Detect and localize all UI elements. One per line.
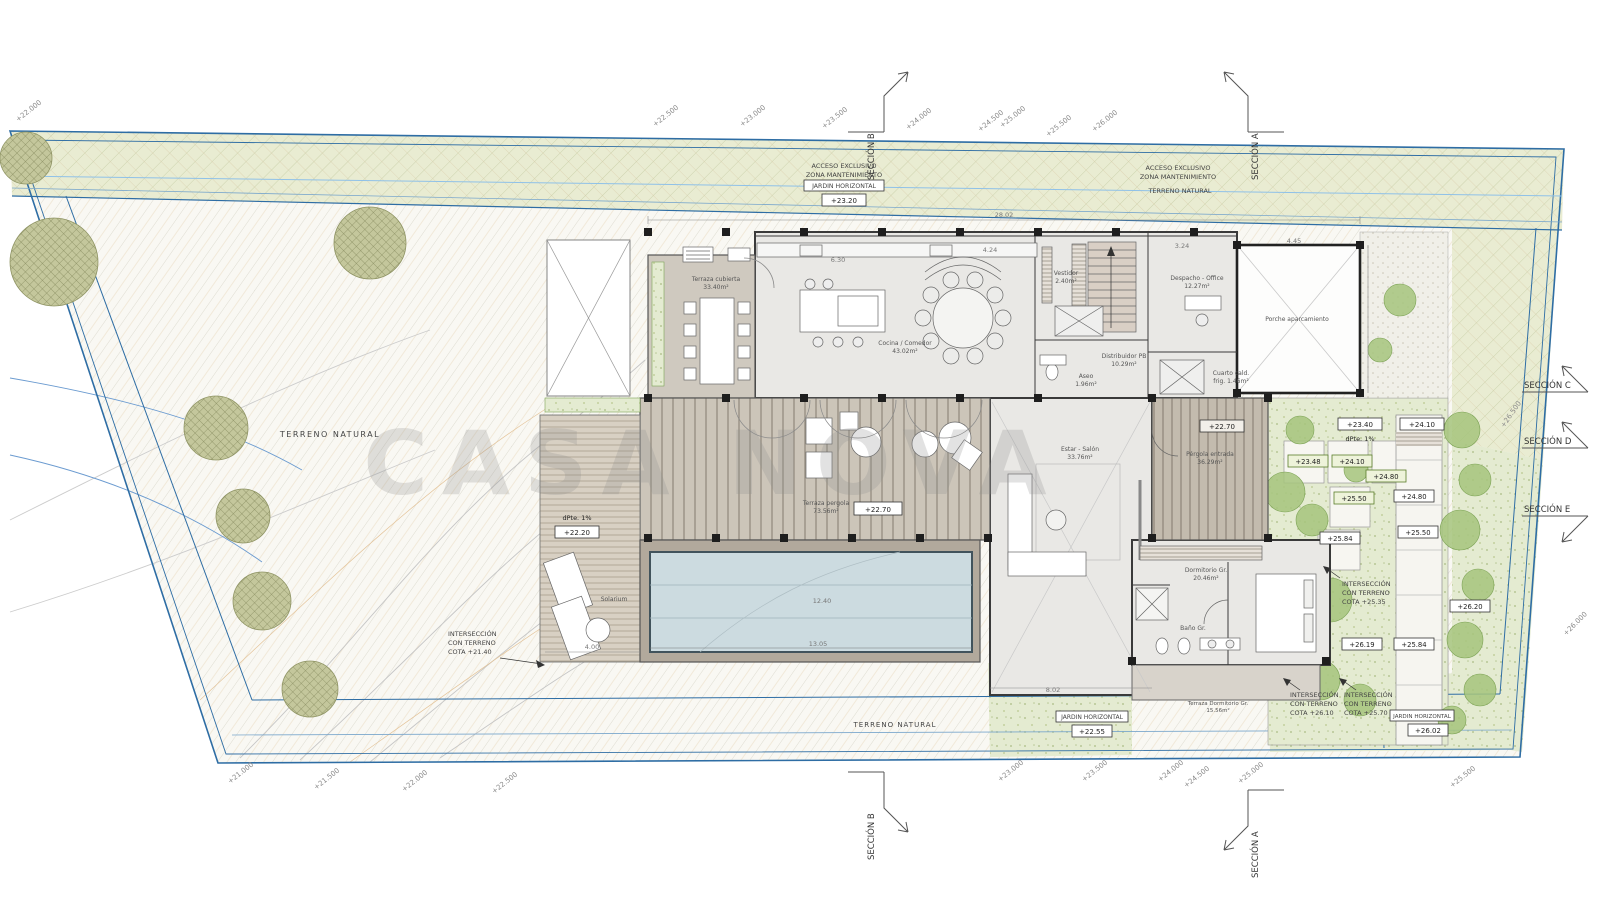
watermark: CASA NOVA <box>363 412 1060 515</box>
svg-text:+23.000: +23.000 <box>738 104 767 129</box>
entry-pergola <box>1152 398 1268 540</box>
svg-text:+22.000: +22.000 <box>14 99 43 124</box>
svg-text:+22.55: +22.55 <box>1079 728 1105 736</box>
room-aseo: Aseo <box>1079 373 1094 380</box>
svg-text:SECCIÓN A: SECCIÓN A <box>1249 133 1261 180</box>
svg-text:+22.000: +22.000 <box>400 769 429 794</box>
svg-text:+24.000: +24.000 <box>904 107 933 132</box>
svg-text:33.40m²: 33.40m² <box>703 284 729 291</box>
acceso-right: ACCESO EXCLUSIVO <box>1146 164 1211 172</box>
svg-text:JARDIN HORIZONTAL: JARDIN HORIZONTAL <box>1392 714 1452 720</box>
room-cocina: Cocina / Comedor <box>878 340 932 347</box>
svg-text:CON TERRENO: CON TERRENO <box>1290 700 1338 708</box>
svg-text:CON TERRENO: CON TERRENO <box>448 639 496 647</box>
dim-pool-top: 12.40 <box>813 597 832 605</box>
svg-text:frig. 1.46m²: frig. 1.46m² <box>1213 378 1249 385</box>
bidet <box>1178 638 1190 654</box>
dim-kitchen: 6.30 <box>831 256 845 264</box>
section-a-bottom: SECCIÓN A <box>1224 790 1284 878</box>
svg-text:+25.000: +25.000 <box>1236 761 1265 786</box>
svg-text:CON TERRENO: CON TERRENO <box>1344 700 1392 708</box>
svg-text:INTERSECCIÓN: INTERSECCIÓN <box>1344 690 1393 699</box>
svg-text:+21.500: +21.500 <box>312 767 341 792</box>
tree <box>10 218 98 306</box>
room-pergola-entrada: Pérgola entrada <box>1186 451 1234 458</box>
svg-text:SECCIÓN E: SECCIÓN E <box>1524 503 1570 515</box>
svg-text:+24.80: +24.80 <box>1401 493 1426 501</box>
tree <box>216 489 270 543</box>
svg-text:JARDIN HORIZONTAL: JARDIN HORIZONTAL <box>1060 714 1124 721</box>
svg-text:+22.500: +22.500 <box>490 771 519 796</box>
svg-text:+26.000: +26.000 <box>1562 610 1589 637</box>
bbq <box>683 247 713 262</box>
room-vestidor: Vestidor <box>1054 270 1079 277</box>
svg-text:SECCIÓN B: SECCIÓN B <box>865 813 877 860</box>
svg-text:SECCIÓN C: SECCIÓN C <box>1524 379 1571 391</box>
svg-text:12.27m²: 12.27m² <box>1184 283 1210 290</box>
svg-text:ZONA MANTENIMIENTO: ZONA MANTENIMIENTO <box>1140 173 1216 181</box>
svg-text:20.46m²: 20.46m² <box>1193 575 1219 582</box>
svg-text:2.40m²: 2.40m² <box>1055 278 1077 285</box>
cota-entry-pergola: +22.70 <box>1200 420 1244 432</box>
toilet <box>1156 638 1168 654</box>
svg-text:+26.000: +26.000 <box>1090 109 1119 134</box>
terreno-natural-bottom: TERRENO NATURAL <box>853 721 937 729</box>
dim-total-top: 28.02 <box>995 211 1014 219</box>
site-plan-drawing: 28.02 6.30 4.24 3.24 4.45 12.40 13.05 4.… <box>0 0 1599 900</box>
svg-text:SECCIÓN A: SECCIÓN A <box>1249 831 1261 878</box>
tree <box>233 572 291 630</box>
svg-text:+26.02: +26.02 <box>1415 727 1441 735</box>
svg-text:+21.000: +21.000 <box>226 761 255 786</box>
dim-pool-bottom: 13.05 <box>809 640 828 648</box>
svg-text:1.96m²: 1.96m² <box>1075 381 1097 388</box>
svg-text:CON TERRENO: CON TERRENO <box>1342 589 1390 597</box>
svg-text:15.56m²: 15.56m² <box>1206 707 1229 714</box>
dim-carport: 4.45 <box>1287 237 1301 245</box>
room-solarium: Solarium <box>601 596 628 603</box>
svg-text:+23.20: +23.20 <box>831 197 857 205</box>
svg-text:+24.80: +24.80 <box>1373 473 1398 481</box>
room-cuarto: Cuarto cald. <box>1213 370 1250 377</box>
dim-office: 3.24 <box>1175 242 1189 250</box>
svg-text:+24.500: +24.500 <box>1182 765 1211 790</box>
tree <box>334 207 406 279</box>
svg-text:+25.000: +25.000 <box>998 105 1027 130</box>
room-estar: Estar - Salón <box>1061 446 1099 453</box>
svg-text:SECCIÓN B: SECCIÓN B <box>865 133 877 180</box>
svg-text:INTERSECCIÓN: INTERSECCIÓN <box>1342 579 1391 588</box>
svg-text:+26.19: +26.19 <box>1349 641 1374 649</box>
svg-text:+24.10: +24.10 <box>1409 421 1435 429</box>
room-porche: Porche aparcamiento <box>1265 316 1329 323</box>
room-despacho: Despacho - Office <box>1170 275 1223 282</box>
svg-text:43.02m²: 43.02m² <box>892 348 918 355</box>
svg-text:dPte. 1%: dPte. 1% <box>562 514 591 522</box>
svg-text:+22.20: +22.20 <box>564 529 590 537</box>
room-bano: Baño Gr. <box>1180 625 1206 632</box>
svg-text:+26.20: +26.20 <box>1457 603 1482 611</box>
room-terraza-dormitorio: Terraza Dormitorio Gr. <box>1187 701 1249 707</box>
svg-text:COTA +25.70: COTA +25.70 <box>1344 709 1388 717</box>
room-distribuidor: Distribuidor PB <box>1102 353 1147 360</box>
svg-text:INTERSECCIÓN: INTERSECCIÓN <box>1290 690 1339 699</box>
svg-text:SECCIÓN D: SECCIÓN D <box>1524 435 1572 447</box>
svg-text:+24.10: +24.10 <box>1339 458 1364 466</box>
room-terraza-cubierta: Terraza cubierta <box>691 276 741 283</box>
terreno-natural-top: TERRENO NATURAL <box>1147 187 1211 195</box>
svg-text:+24.000: +24.000 <box>1156 759 1185 784</box>
svg-text:+25.500: +25.500 <box>1448 765 1477 790</box>
pool <box>650 552 972 652</box>
tree <box>0 132 52 184</box>
svg-text:COTA +21.40: COTA +21.40 <box>448 648 492 656</box>
svg-text:10.29m²: 10.29m² <box>1111 361 1137 368</box>
svg-text:+23.500: +23.500 <box>820 106 849 131</box>
svg-text:+23.48: +23.48 <box>1295 458 1320 466</box>
svg-text:33.76m²: 33.76m² <box>1067 454 1093 461</box>
dim-deck: 4.00 <box>585 643 599 651</box>
svg-text:+25.84: +25.84 <box>1401 641 1426 649</box>
svg-text:36.29m²: 36.29m² <box>1197 459 1223 466</box>
svg-text:+23.000: +23.000 <box>996 759 1025 784</box>
dim-dining: 4.24 <box>983 246 997 254</box>
svg-text:+22.70: +22.70 <box>1209 423 1235 431</box>
svg-text:+23.40: +23.40 <box>1347 421 1373 429</box>
svg-text:JARDIN HORIZONTAL: JARDIN HORIZONTAL <box>811 183 876 190</box>
svg-text:+25.84: +25.84 <box>1327 535 1352 543</box>
svg-text:dPte. 1%: dPte. 1% <box>1345 435 1374 443</box>
cota-entry-step: +24.10 <box>1400 418 1444 430</box>
tree <box>282 661 338 717</box>
dim-living: 8.02 <box>1046 686 1060 694</box>
svg-text:+25.500: +25.500 <box>1044 114 1073 139</box>
svg-text:+23.500: +23.500 <box>1080 759 1109 784</box>
svg-text:INTERSECCIÓN: INTERSECCIÓN <box>448 629 497 638</box>
tree <box>184 396 248 460</box>
svg-text:+25.50: +25.50 <box>1341 495 1366 503</box>
svg-text:+25.50: +25.50 <box>1405 529 1430 537</box>
room-dormitorio: Dormitorio Gr. <box>1185 567 1227 574</box>
section-b-bottom: SECCIÓN B <box>848 772 908 860</box>
svg-text:COTA +25.35: COTA +25.35 <box>1342 598 1386 606</box>
svg-text:+22.500: +22.500 <box>651 104 680 129</box>
svg-text:COTA +26.10: COTA +26.10 <box>1290 709 1334 717</box>
